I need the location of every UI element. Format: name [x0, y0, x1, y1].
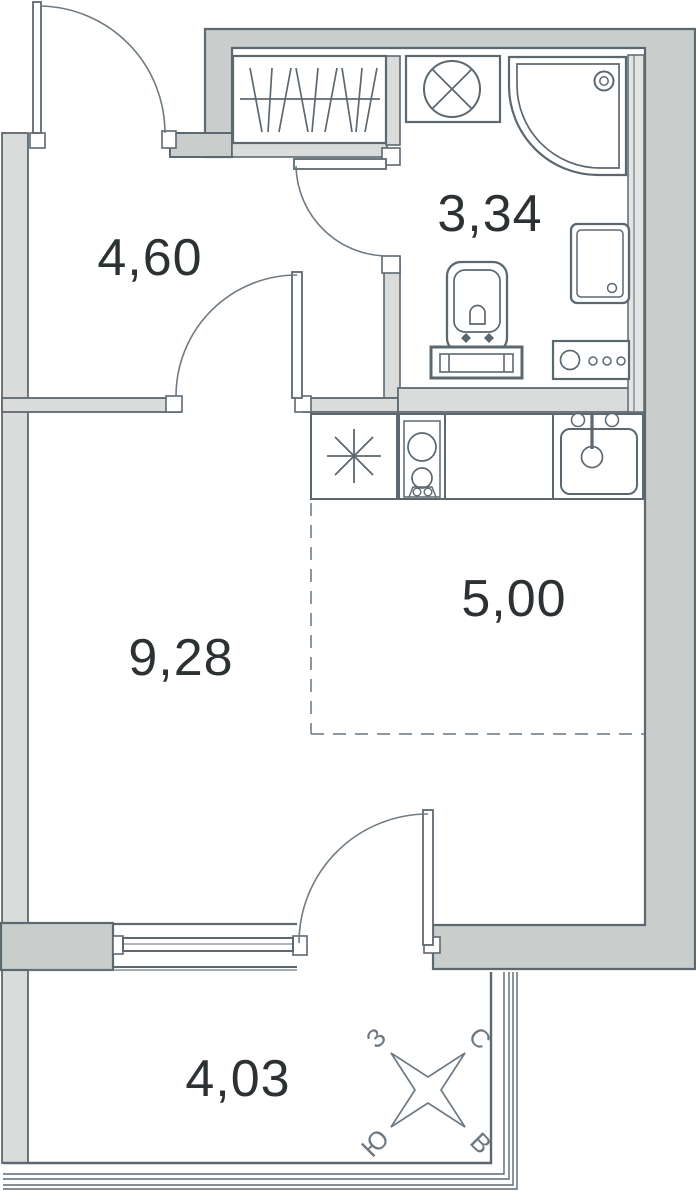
- toilet-flush: [470, 306, 485, 324]
- jamb-balcony-left: [293, 936, 307, 955]
- shower-icon: [509, 57, 626, 175]
- room-area-label-living: 9,28: [128, 629, 233, 687]
- door-leaf: [423, 810, 433, 945]
- room-area-label-bathroom: 3,34: [437, 185, 542, 243]
- sink-tap-handle: [606, 414, 619, 427]
- refrigerator-icon: [311, 414, 397, 499]
- wall-bathroom-lining: [628, 55, 644, 412]
- toilet-frame: [431, 347, 522, 378]
- kitchen-sink-icon: [553, 414, 643, 500]
- window-end-cap: [113, 936, 123, 954]
- door-leaf: [294, 159, 386, 169]
- door-jambs: [30, 131, 440, 955]
- washing-machine-icon: [406, 56, 500, 122]
- shower-head: [595, 72, 614, 91]
- door-swing-arc: [176, 275, 297, 396]
- jamb-room-left: [166, 396, 182, 412]
- compass-letter-west: З: [360, 1022, 392, 1054]
- floor-plan-svg: 4,60 3,34 9,28 5,00 4,03 З С Ю В: [0, 0, 696, 1191]
- door-swing-arc: [299, 814, 428, 943]
- wall-under-wardrobe: [232, 143, 387, 157]
- compass-letter-east: В: [464, 1126, 497, 1159]
- room-area-label-hallway: 4,60: [97, 229, 202, 287]
- room-door: [176, 272, 302, 398]
- room-area-label-kitchen: 5,00: [461, 570, 566, 628]
- wardrobe-icon: [233, 56, 386, 143]
- wall-left: [2, 133, 28, 1163]
- stove-icon: [399, 414, 445, 499]
- entrance-door: [33, 2, 165, 133]
- wall-hall-partition-right: [303, 398, 398, 412]
- toilet-icon: [431, 262, 522, 378]
- wall-hall-partition-left: [2, 398, 180, 412]
- compass-letter-south: Ю: [355, 1123, 395, 1163]
- wall-bathroom-lower-left: [384, 258, 400, 398]
- vanity-icon: [553, 341, 629, 379]
- wall-bottom-left: [1, 923, 113, 970]
- bathroom-cabinet-icon: [571, 224, 629, 303]
- stove-box: [399, 414, 445, 499]
- jamb-entrance-strike: [162, 131, 176, 148]
- balcony-door: [299, 810, 433, 945]
- door-swing-arc: [41, 6, 165, 133]
- door-leaf: [292, 272, 302, 398]
- sink-tap-handle: [572, 414, 585, 427]
- door-leaf: [33, 2, 41, 133]
- compass-rose-icon: З С Ю В: [355, 1021, 498, 1163]
- kitchen-counter: [445, 414, 553, 499]
- fridge-asterisk: [327, 429, 381, 483]
- room-area-label-balcony: 4,03: [185, 1050, 290, 1108]
- wall-bathroom-bottom: [398, 388, 643, 412]
- wall-entrance-stub: [170, 133, 232, 157]
- bathroom-door: [294, 159, 388, 256]
- compass-star: [391, 1053, 465, 1127]
- door-swing-arc: [296, 166, 388, 256]
- cabinet-outer: [571, 224, 629, 303]
- floor-plan: 4,60 3,34 9,28 5,00 4,03 З С Ю В: [0, 0, 696, 1191]
- jamb-bath-bottom: [382, 256, 400, 273]
- jamb-entrance-hinge: [30, 133, 45, 148]
- walls: [1, 29, 695, 1163]
- wall-bathroom-upper-left: [386, 56, 400, 145]
- sink-box: [553, 414, 643, 499]
